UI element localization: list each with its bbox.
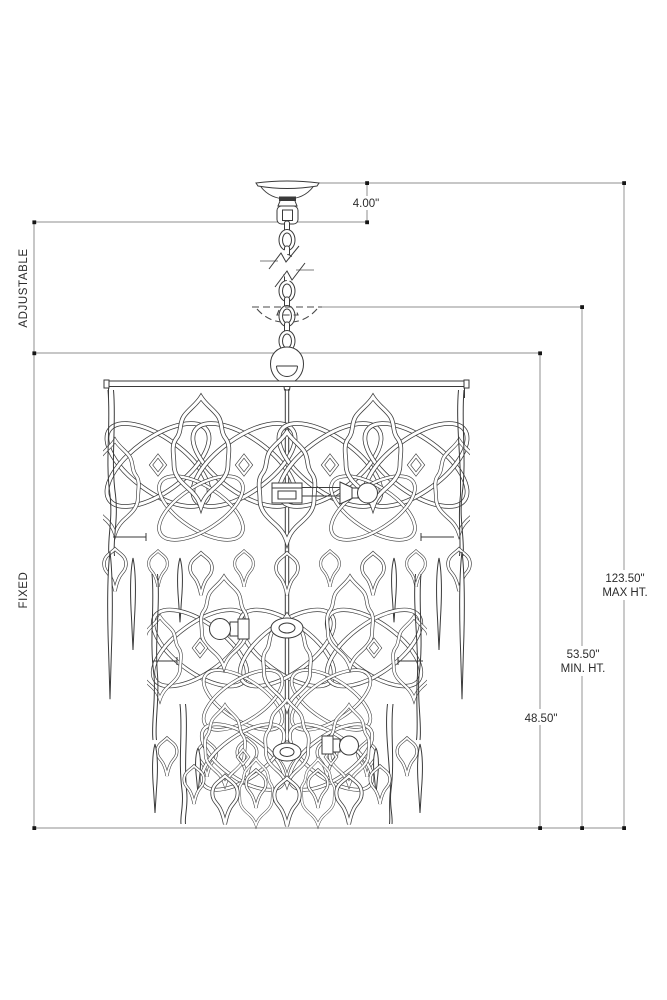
- canopy-height-label: 4.00": [353, 198, 379, 210]
- chandelier-dimension-drawing: 4.00" 123.50" MAX HT. 53.50" MIN. HT. 48…: [0, 0, 667, 1000]
- chandelier-artwork: [91, 181, 482, 826]
- fixed-height-label: 48.50": [525, 713, 558, 725]
- light-bulb: [358, 483, 378, 503]
- hanging-chain: [279, 221, 295, 352]
- tier-2-socket-and-bulb: [210, 619, 250, 640]
- tier-support-arm-right: [421, 533, 454, 541]
- max-height-value: 123.50": [605, 573, 644, 585]
- tier-3-socket-and-bulb: [322, 736, 359, 755]
- tier-1-filigree: [91, 390, 482, 699]
- light-bulb: [340, 736, 359, 755]
- min-height-qualifier: MIN. HT.: [561, 663, 606, 675]
- light-bulb: [210, 619, 231, 640]
- max-height-qualifier: MAX HT.: [602, 587, 647, 599]
- min-height-value: 53.50": [567, 649, 600, 661]
- ceiling-canopy: [256, 181, 319, 224]
- center-stem: [285, 389, 288, 752]
- adjustable-section-label: ADJUSTABLE: [18, 248, 30, 327]
- fixed-section-label: FIXED: [18, 572, 30, 609]
- stem-hub-tier-3: [273, 743, 301, 761]
- stem-hub-tier-2: [271, 618, 303, 638]
- tier-support-arm-left: [113, 533, 146, 541]
- drawing-sheet: 4.00" 123.50" MAX HT. 53.50" MIN. HT. 48…: [0, 0, 667, 1000]
